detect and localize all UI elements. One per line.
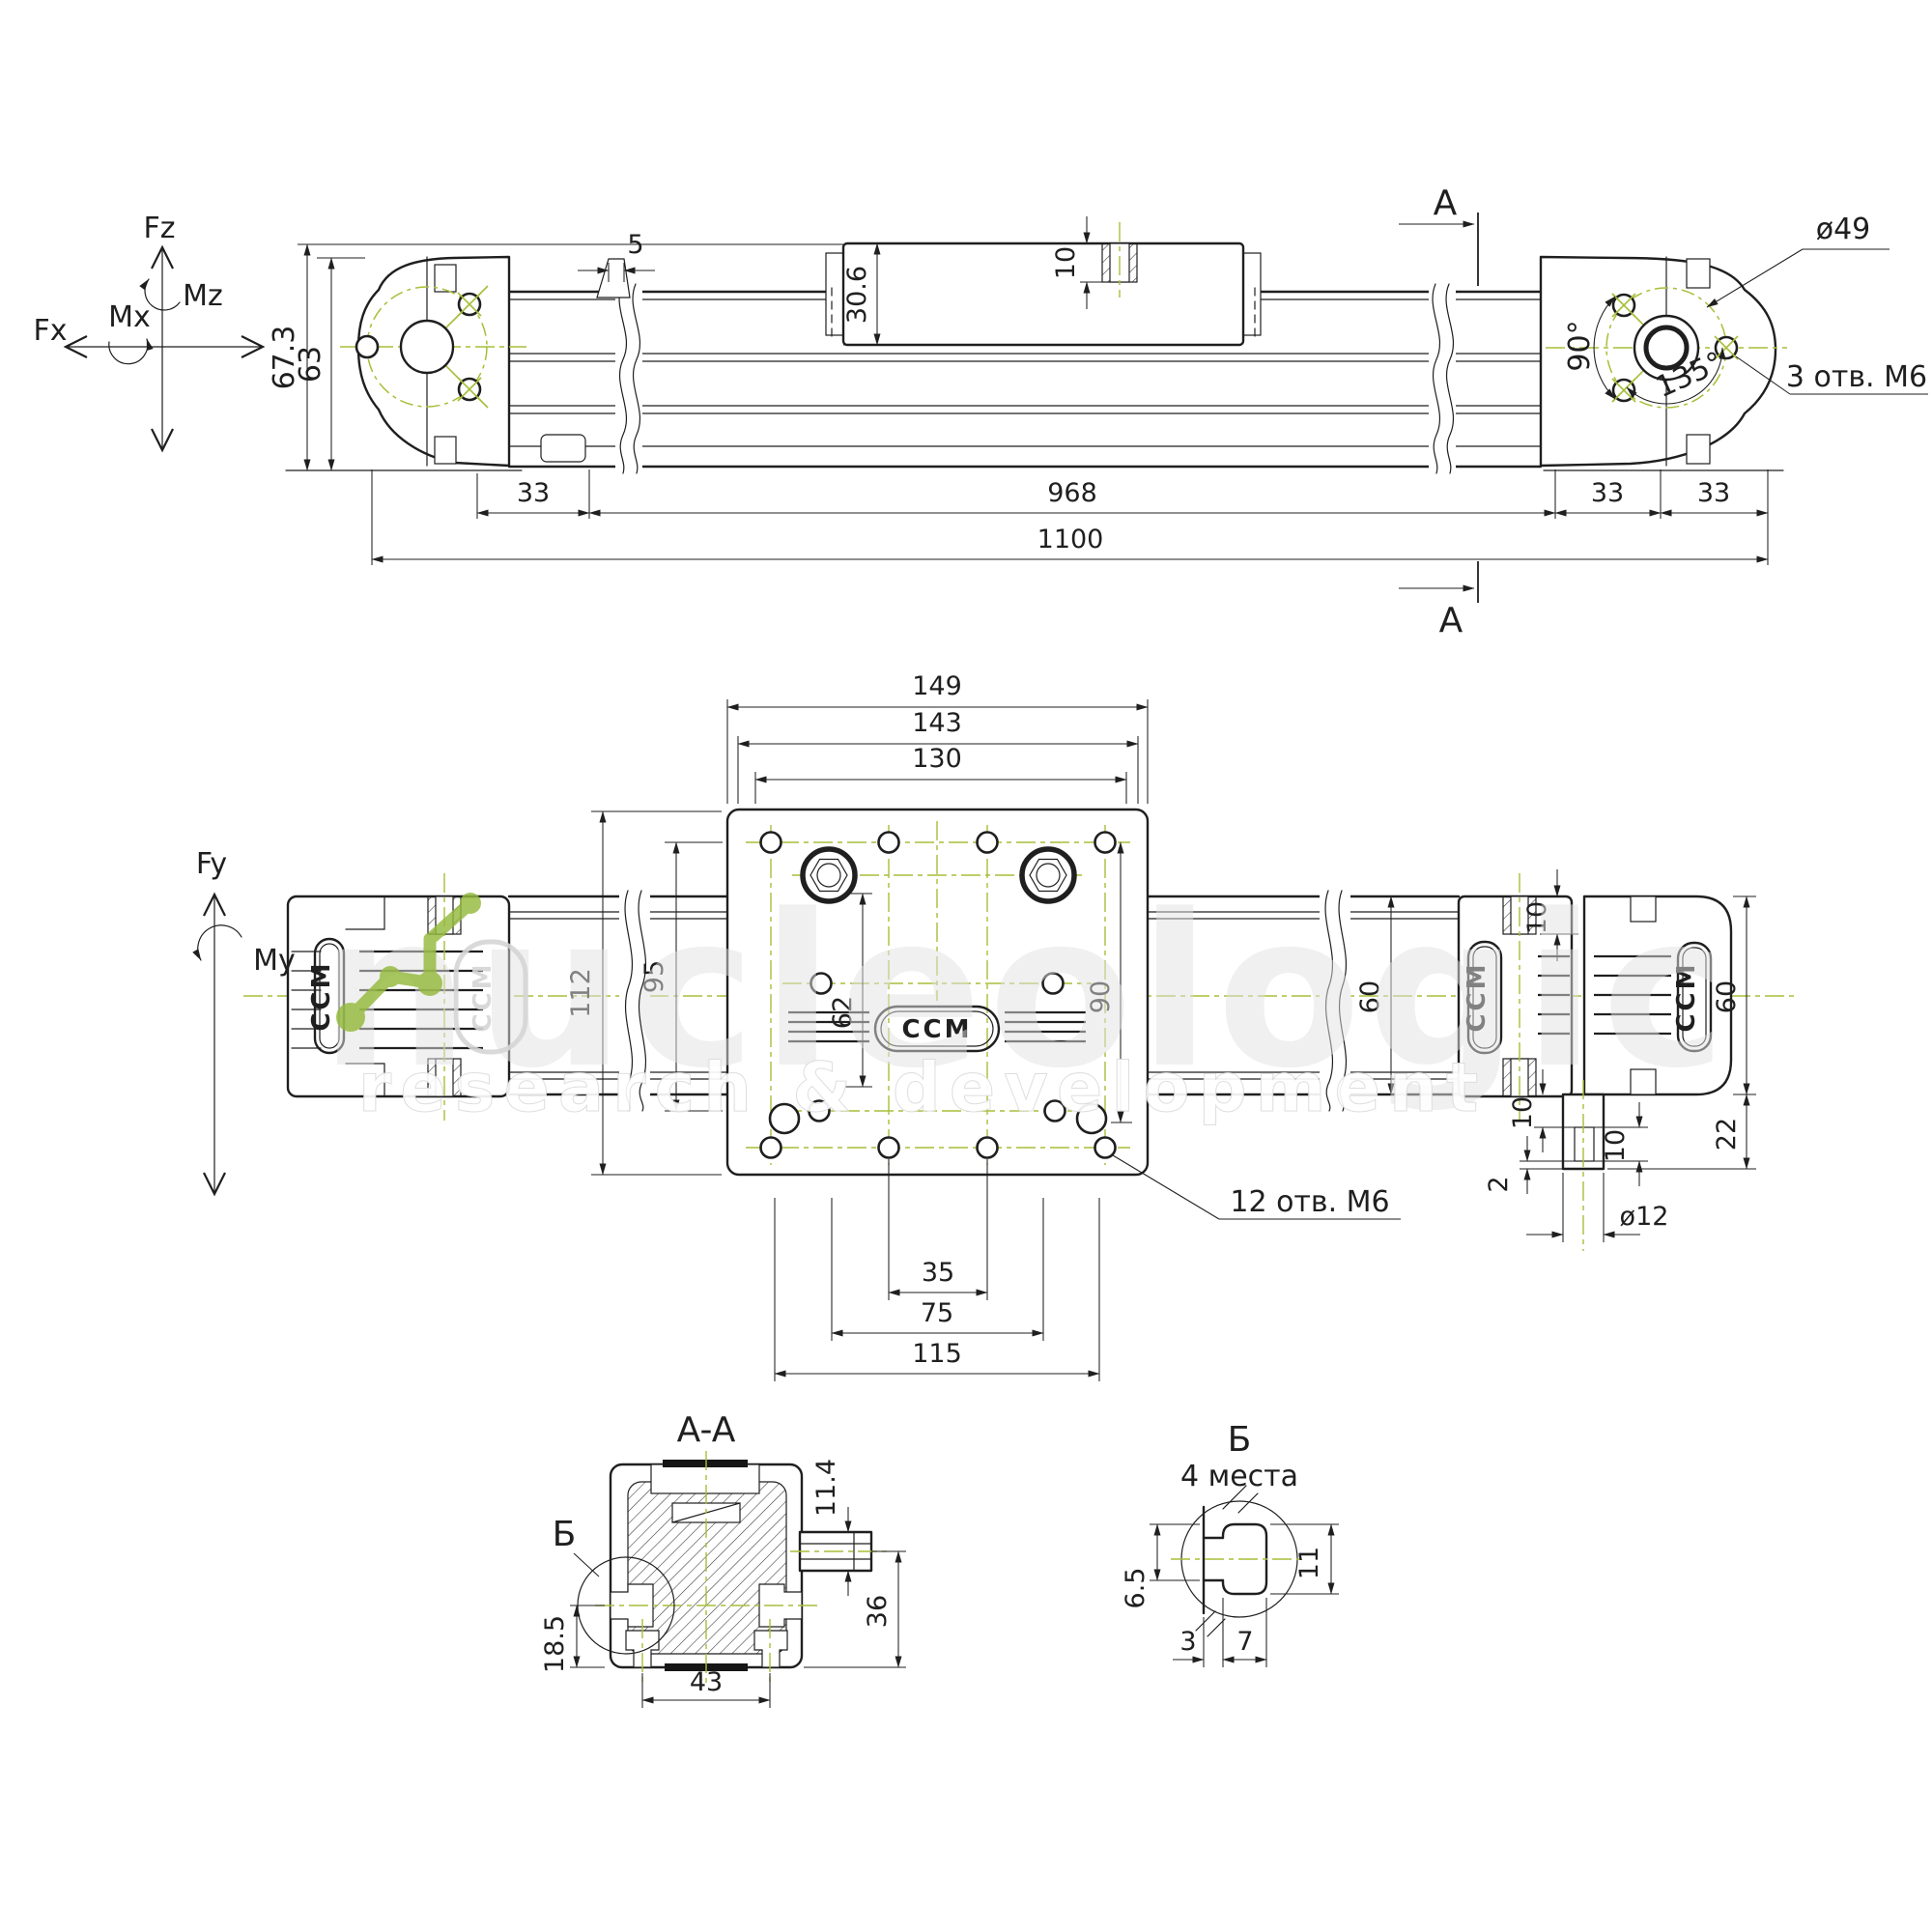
dim-43: 43 [690,1667,723,1697]
dim-1100: 1100 [1037,525,1104,554]
dim-2: 2 [1484,1176,1514,1192]
ccm-logo-ghost: CCM [469,961,497,1032]
dim-33-r2: 33 [1697,478,1730,508]
watermark-subtitle: research & development [358,1048,1488,1127]
dim-33-left: 33 [517,478,550,508]
dim-10-thread: 10 [1051,246,1081,279]
label-fz: Fz [143,212,175,245]
label-mx: Mx [108,300,151,334]
dim-35: 35 [922,1258,954,1288]
detail-b-title: Б [1228,1420,1252,1460]
dim-115: 115 [912,1339,962,1369]
dim-7: 7 [1236,1627,1253,1657]
watermark: nucleologic research & development CCM [320,870,1732,1127]
dim-149: 149 [912,671,962,701]
dim-5: 5 [627,230,643,260]
hatch-continuation-marks [1196,1486,1258,1636]
dim-3: 3 [1179,1627,1196,1657]
label-fx: Fx [33,314,67,348]
force-axes-y: Fy My [196,847,296,1194]
label-my: My [253,944,296,978]
center-bore-left [401,321,453,373]
label-mz: Mz [183,279,223,313]
mx-rotation-arc [109,339,148,364]
dim-d49: ø49 [1816,213,1871,246]
rail-slot-left [541,435,585,462]
dim-63: 63 [294,346,327,383]
dim-130: 130 [912,744,962,774]
dim-90deg: 90° [1563,320,1597,371]
note-3-holes-m6: 3 отв. М6 [1786,360,1927,394]
magnet-strip-top [663,1460,748,1467]
dim-968: 968 [1047,478,1097,508]
dim-11: 11 [1294,1547,1324,1579]
dim-d12: ø12 [1620,1202,1669,1232]
dim-75: 75 [921,1298,953,1328]
detail-b-dimensions: 11 6.5 3 7 [1121,1524,1339,1667]
my-rotation-arc [198,925,241,960]
top-channel [651,1464,759,1493]
detail-b-ref-label: Б [553,1515,577,1554]
side-view: 67.3 63 5 30.6 10 33 968 33 33 1100 ø49 … [268,184,1928,640]
dim-30-6: 30.6 [842,266,872,324]
section-aa: A-A Б 11.4 36 43 18.5 [540,1410,906,1708]
dim-33-r1: 33 [1591,478,1624,508]
dim-18-5: 18.5 [540,1615,570,1673]
sensor-cap [597,259,630,298]
dim-36: 36 [863,1595,893,1628]
note-12-holes-m6: 12 отв. М6 [1230,1185,1389,1219]
detail-b-subtitle: 4 места [1180,1460,1298,1493]
dim-143: 143 [912,708,962,738]
label-fy: Fy [196,847,227,881]
technical-drawing: Fz Mz Mx Fx [0,0,1932,1932]
side-carriage [826,222,1261,345]
dim-22: 22 [1712,1118,1742,1151]
dim-11-4: 11.4 [811,1459,841,1517]
section-a-bottom: A [1439,601,1463,640]
dim-10-tab: 10 [1601,1129,1631,1162]
drawing-page: Fz Mz Mx Fx [0,0,1932,1932]
section-a-top: A [1434,184,1458,223]
dim-6-5: 6.5 [1121,1568,1151,1609]
section-aa-title: A-A [677,1410,736,1450]
force-axes-xz: Fz Mz Mx Fx [33,212,263,450]
detail-b: Б 4 места 11 6.5 3 7 [1121,1420,1339,1667]
